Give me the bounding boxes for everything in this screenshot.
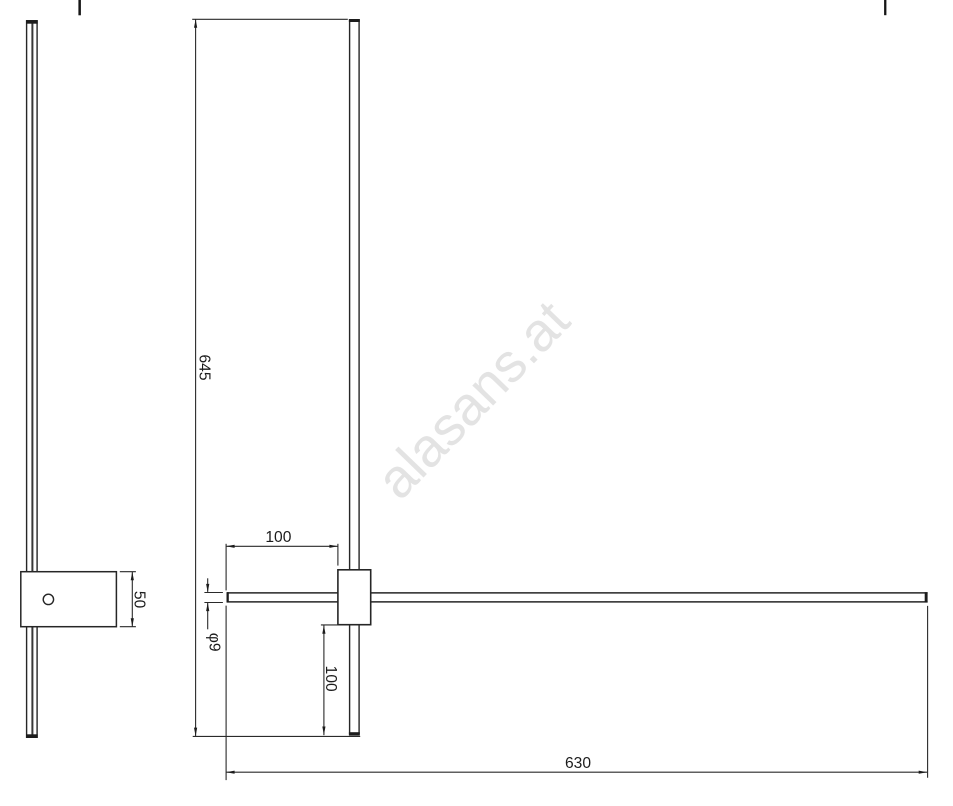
svg-text:50: 50: [130, 591, 147, 609]
svg-text:φ9: φ9: [206, 633, 223, 652]
svg-text:630: 630: [565, 755, 591, 772]
svg-text:645: 645: [196, 354, 213, 380]
svg-text:100: 100: [322, 666, 339, 692]
svg-text:100: 100: [265, 529, 291, 546]
